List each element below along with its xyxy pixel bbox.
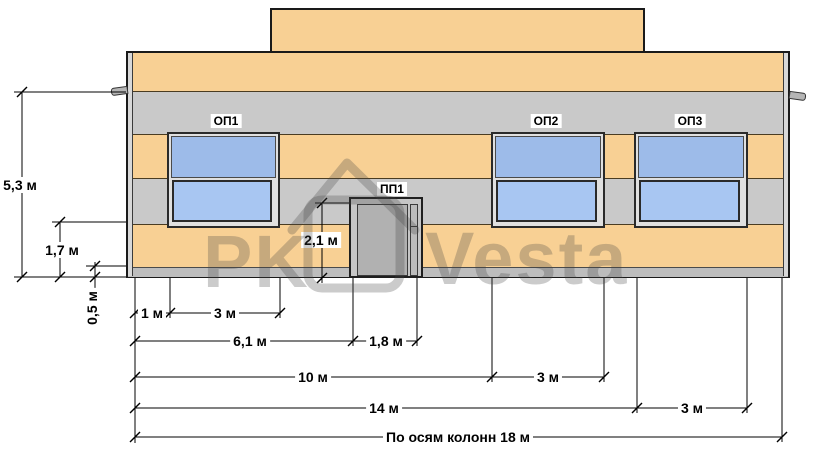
dim-row4-window3-offset: 14 м — [366, 400, 402, 416]
dim-row1-window1-width: 3 м — [211, 305, 239, 321]
dim-total-height: 5,3 м — [0, 177, 40, 193]
dim-row3-window2-offset: 10 м — [295, 369, 331, 385]
dim-plinth-height: 0,5 м — [84, 288, 100, 328]
dim-row4-window3-width: 3 м — [678, 400, 706, 416]
elevation-drawing: ОП1 ОП2 ОП3 ПП1 — [0, 0, 822, 453]
dim-row5-column-axes-total: По осям колонн 18 м — [383, 429, 533, 445]
dimension-lines-layer — [0, 0, 822, 453]
dim-row2-door-offset: 6,1 м — [230, 333, 270, 349]
dim-row1-offset: 1 м — [138, 305, 166, 321]
dim-row3-window2-width: 3 м — [534, 369, 562, 385]
dim-upper-band-height: 1,7 м — [42, 242, 82, 258]
dim-row2-door-width: 1,8 м — [366, 333, 406, 349]
dim-door-height: 2,1 м — [301, 232, 341, 248]
